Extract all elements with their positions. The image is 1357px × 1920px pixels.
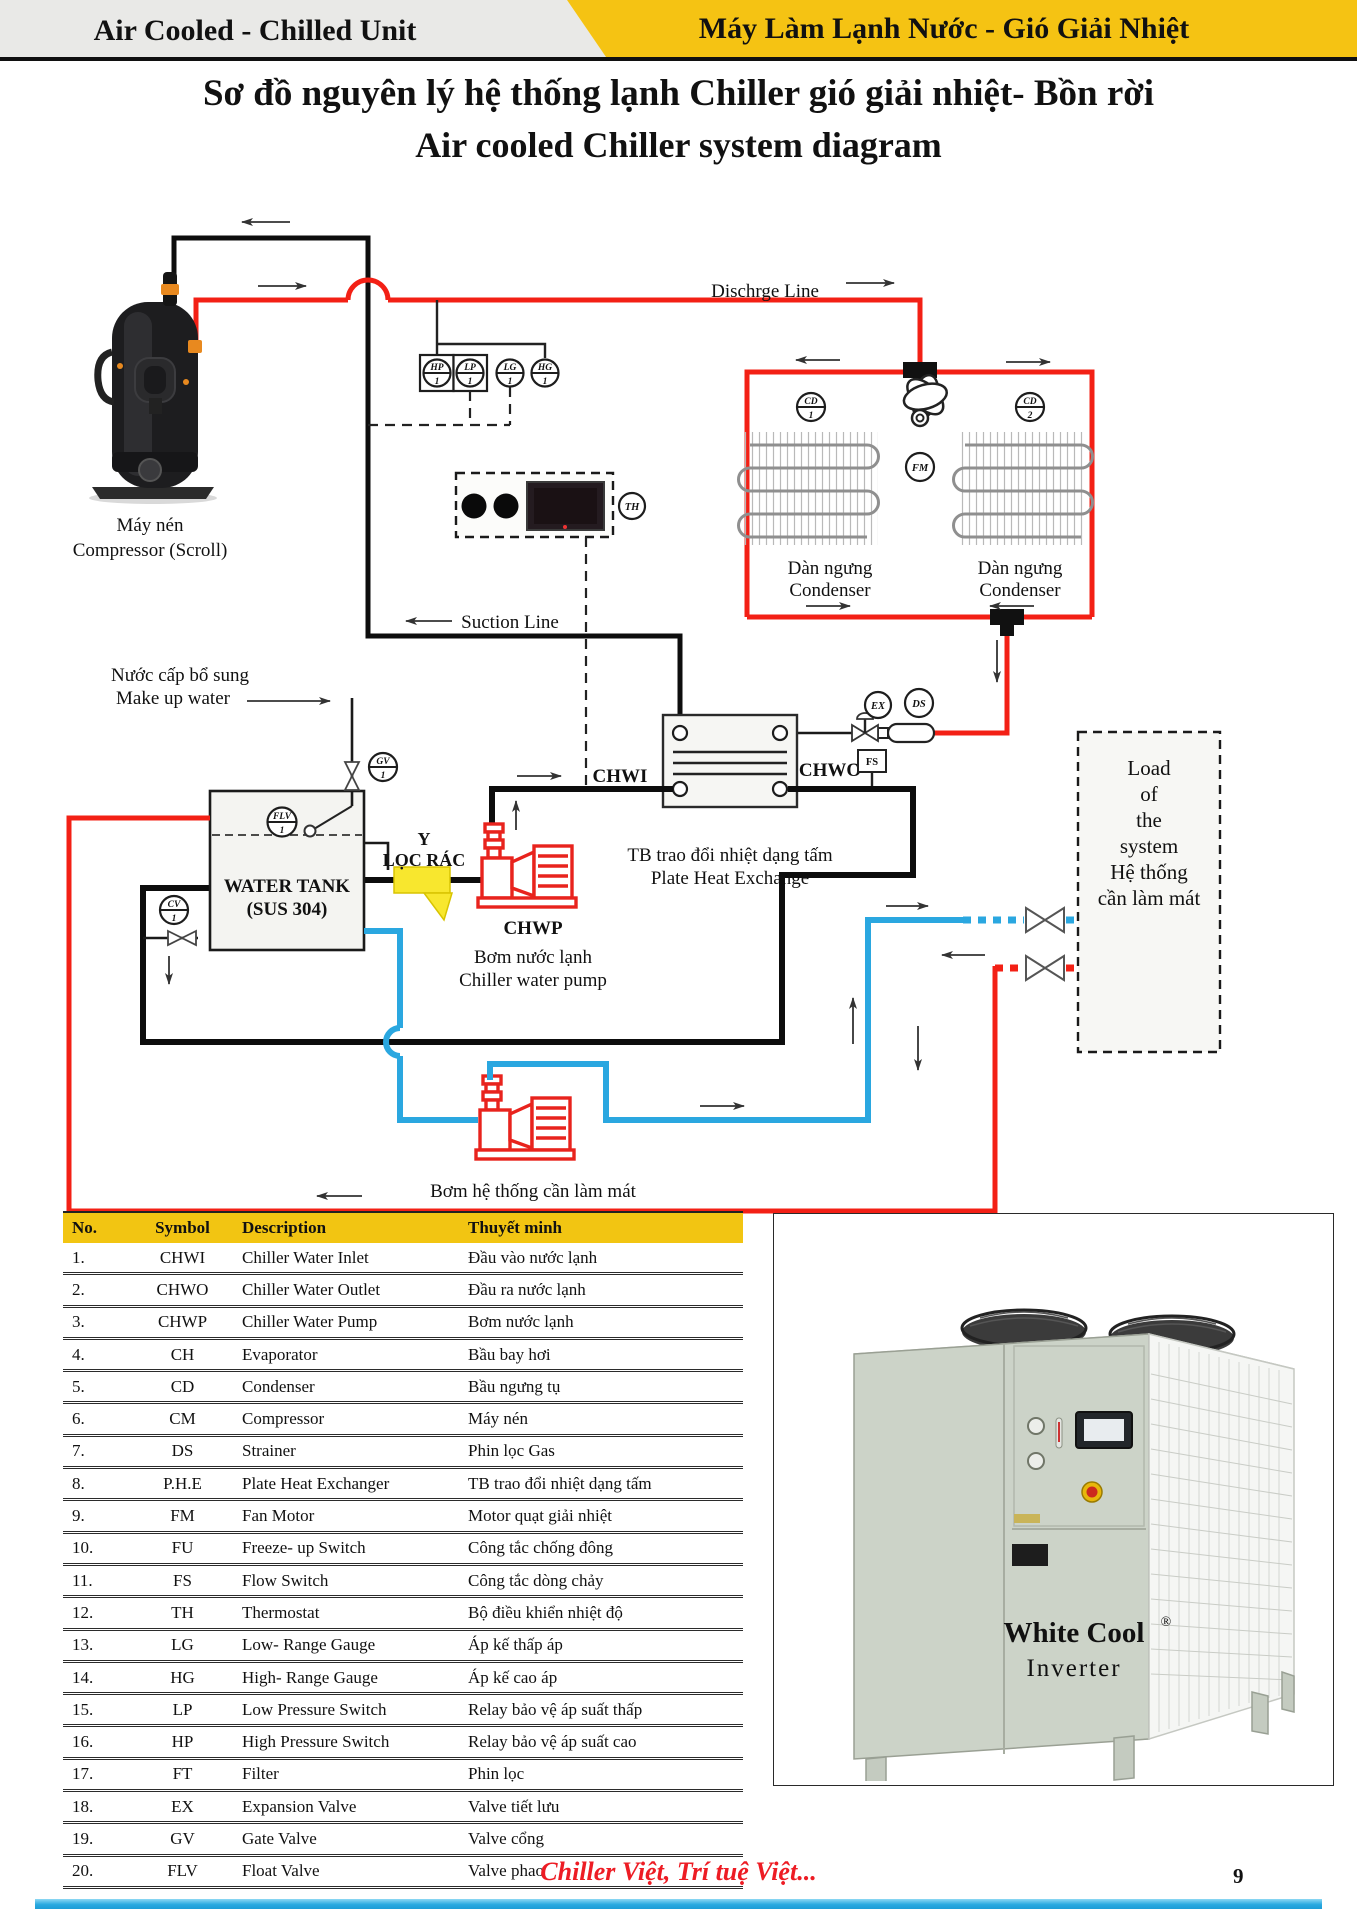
cell-no: 6. <box>63 1409 130 1429</box>
table-row: 19.GVGate ValveValve cổng <box>63 1824 743 1856</box>
cell-desc: Strainer <box>235 1441 460 1461</box>
makeup-valve-symbol <box>345 762 359 790</box>
cell-vn: Bầu ngưng tụ <box>460 1377 743 1397</box>
cell-sym: HP <box>130 1732 235 1752</box>
col-header-vn: Thuyết minh <box>460 1218 743 1238</box>
thermostat-bubble: TH <box>619 493 645 519</box>
cell-vn: Áp kế thấp áp <box>460 1635 743 1655</box>
chwo-label: CHWO <box>799 760 861 781</box>
cell-vn: Bầu bay hơi <box>460 1345 743 1365</box>
col-header-no: No. <box>63 1218 130 1238</box>
cell-no: 7. <box>63 1441 130 1461</box>
table-header-row: No. Symbol Description Thuyết minh <box>63 1213 743 1243</box>
cell-desc: Chiller Water Inlet <box>235 1248 460 1268</box>
page-number: 9 <box>1233 1864 1244 1889</box>
gv-label: GV <box>376 757 390 767</box>
cell-sym: GV <box>130 1829 235 1849</box>
system-pump-label: Bơm hệ thống cần làm mát <box>430 1181 637 1202</box>
cell-no: 14. <box>63 1668 130 1688</box>
cell-desc: Fan Motor <box>235 1506 460 1526</box>
gauge-hg-num: 1 <box>543 377 548 387</box>
cell-desc: Freeze- up Switch <box>235 1538 460 1558</box>
ds-label: DS <box>911 699 926 710</box>
cell-sym: TH <box>130 1603 235 1623</box>
cell-sym: FM <box>130 1506 235 1526</box>
cell-sym: P.H.E <box>130 1474 235 1494</box>
return-shutoff-valve <box>1026 956 1064 980</box>
gauge-lp-label: LP <box>463 363 476 373</box>
gauge-lp-num: 1 <box>468 377 473 387</box>
cv-num: 1 <box>172 914 177 924</box>
symbol-table: No. Symbol Description Thuyết minh 1.CHW… <box>63 1211 743 1889</box>
cell-vn: Motor quạt giải nhiệt <box>460 1506 743 1526</box>
cell-no: 10. <box>63 1538 130 1558</box>
condenser-left-label-vn: Dàn ngưng <box>788 558 873 579</box>
cell-desc: Expansion Valve <box>235 1797 460 1817</box>
table-row: 6.CMCompressorMáy nén <box>63 1404 743 1436</box>
chwp-label: CHWP <box>503 918 563 939</box>
load-line-6: cần làm mát <box>1098 886 1201 910</box>
table-body: 1.CHWIChiller Water InletĐầu vào nước lạ… <box>63 1243 743 1889</box>
flv-num: 1 <box>280 826 285 836</box>
flow-switch: FS <box>858 750 886 789</box>
col-header-symbol: Symbol <box>130 1218 235 1238</box>
cell-vn: Relay bảo vệ áp suất cao <box>460 1732 743 1752</box>
table-row: 11.FSFlow SwitchCông tắc dòng chảy <box>63 1566 743 1598</box>
cell-no: 2. <box>63 1280 130 1300</box>
table-row: 5.CDCondenserBầu ngưng tụ <box>63 1372 743 1404</box>
cell-desc: Thermostat <box>235 1603 460 1623</box>
gauge-lg-label: LG <box>503 363 517 373</box>
cell-desc: Chiller Water Pump <box>235 1312 460 1332</box>
cell-vn: Đầu vào nước lạnh <box>460 1248 743 1268</box>
strainer-symbol <box>888 724 934 742</box>
cell-sym: LG <box>130 1635 235 1655</box>
cell-desc: Plate Heat Exchanger <box>235 1474 460 1494</box>
condenser-right-label-vn: Dàn ngưng <box>978 558 1063 579</box>
cd1-bubble: CD 1 <box>797 393 825 421</box>
fs-label: FS <box>866 757 878 768</box>
table-row: 7.DSStrainerPhin lọc Gas <box>63 1437 743 1469</box>
table-row: 8.P.H.EPlate Heat ExchangerTB trao đổi n… <box>63 1469 743 1501</box>
page: Air Cooled - Chilled Unit Máy Làm Lạnh N… <box>0 0 1357 1920</box>
cell-sym: CHWP <box>130 1312 235 1332</box>
cell-sym: CD <box>130 1377 235 1397</box>
cd2-num: 2 <box>1027 411 1033 421</box>
cell-no: 1. <box>63 1248 130 1268</box>
cell-no: 19. <box>63 1829 130 1849</box>
cd1-label: CD <box>804 397 817 407</box>
condenser-left-label-en: Condenser <box>789 580 871 601</box>
gv-num: 1 <box>381 771 386 781</box>
cell-vn: Áp kế cao áp <box>460 1668 743 1688</box>
cd2-bubble: CD 2 <box>1016 393 1044 421</box>
footer-blue-bar <box>35 1899 1322 1909</box>
table-row: 10.FUFreeze- up SwitchCông tắc chống đôn… <box>63 1534 743 1566</box>
cv-label: CV <box>168 900 181 910</box>
cd2-label: CD <box>1023 397 1036 407</box>
cell-no: 13. <box>63 1635 130 1655</box>
load-line-1: Load <box>1127 756 1171 780</box>
table-row: 9.FMFan MotorMotor quạt giải nhiệt <box>63 1501 743 1533</box>
drain-valve-symbol <box>168 931 196 945</box>
footer-slogan: Chiller Việt, Trí tuệ Việt... <box>0 1857 1357 1887</box>
flv-label: FLV <box>272 812 292 822</box>
cell-sym: EX <box>130 1797 235 1817</box>
makeup-label-en: Make up water <box>116 688 231 709</box>
cell-vn: Đầu ra nước lạnh <box>460 1280 743 1300</box>
cd1-num: 1 <box>809 411 814 421</box>
supply-shutoff-valve <box>1026 908 1064 932</box>
cell-desc: Filter <box>235 1764 460 1784</box>
cell-no: 18. <box>63 1797 130 1817</box>
system-pump-illustration <box>476 1076 574 1159</box>
cell-desc: Evaporator <box>235 1345 460 1365</box>
cell-vn: Bộ điều khiển nhiệt độ <box>460 1603 743 1623</box>
brand-text: White Cool <box>1004 1617 1145 1649</box>
cell-sym: FS <box>130 1571 235 1591</box>
table-row: 13.LGLow- Range GaugeÁp kế thấp áp <box>63 1631 743 1663</box>
gauge-hp-num: 1 <box>435 377 440 387</box>
table-row: 17.FTFilterPhin lọc <box>63 1760 743 1792</box>
cell-desc: Chiller Water Outlet <box>235 1280 460 1300</box>
load-box: Load of the system Hệ thống cần làm mát <box>1078 732 1220 1052</box>
th-label: TH <box>625 502 640 513</box>
fm-label: FM <box>911 463 929 474</box>
cell-sym: CM <box>130 1409 235 1429</box>
water-tank-sus: (SUS 304) <box>247 899 328 920</box>
cell-sym: CHWO <box>130 1280 235 1300</box>
cell-desc: Low- Range Gauge <box>235 1635 460 1655</box>
condenser-fan <box>901 372 950 426</box>
table-row: 2.CHWOChiller Water OutletĐầu ra nước lạ… <box>63 1275 743 1307</box>
gauge-lg-num: 1 <box>508 377 513 387</box>
cell-desc: High Pressure Switch <box>235 1732 460 1752</box>
load-line-4: system <box>1120 834 1178 858</box>
chwp-label-vn: Bơm nước lạnh <box>474 947 592 968</box>
cell-desc: Condenser <box>235 1377 460 1397</box>
cell-no: 12. <box>63 1603 130 1623</box>
load-line-2: of <box>1140 782 1158 806</box>
cell-vn: Valve tiết lưu <box>460 1797 743 1817</box>
brand-reg: ® <box>1161 1615 1172 1630</box>
cell-no: 17. <box>63 1764 130 1784</box>
cell-sym: CH <box>130 1345 235 1365</box>
cabinet-body <box>854 1334 1294 1759</box>
compressor-label-en: Compressor (Scroll) <box>73 540 228 561</box>
float-ball <box>305 826 316 837</box>
chiller-product-illustration: White Cool ® Inverter <box>774 1214 1329 1781</box>
makeup-label-vn: Nước cấp bổ sung <box>111 665 250 686</box>
condenser-right-label-en: Condenser <box>979 580 1061 601</box>
table-row: 16.HPHigh Pressure SwitchRelay bảo vệ áp… <box>63 1727 743 1759</box>
water-tank-label: WATER TANK <box>224 876 350 897</box>
load-line-5: Hệ thống <box>1110 860 1188 884</box>
cell-no: 9. <box>63 1506 130 1526</box>
table-row: 15.LPLow Pressure SwitchRelay bảo vệ áp … <box>63 1695 743 1727</box>
table-row: 14.HGHigh- Range GaugeÁp kế cao áp <box>63 1663 743 1695</box>
cell-no: 15. <box>63 1700 130 1720</box>
table-row: 4.CHEvaporatorBầu bay hơi <box>63 1340 743 1372</box>
gauge-cluster: HP 1 LP 1 LG 1 HG 1 <box>368 300 559 425</box>
discharge-line-label: Dischrge Line <box>711 281 819 302</box>
cell-desc: Low Pressure Switch <box>235 1700 460 1720</box>
cell-vn: Công tắc chống đông <box>460 1538 743 1558</box>
condenser-coil-left <box>739 432 879 545</box>
table-row: 18.EXExpansion ValveValve tiết lưu <box>63 1792 743 1824</box>
cell-vn: Valve cổng <box>460 1829 743 1849</box>
y-strainer <box>394 867 452 920</box>
cell-vn: TB trao đổi nhiệt dạng tấm <box>460 1474 743 1494</box>
liquid-line-components: EX DS <box>787 689 934 742</box>
cell-no: 3. <box>63 1312 130 1332</box>
chwp-pump-illustration <box>478 824 576 907</box>
cell-sym: LP <box>130 1700 235 1720</box>
table-row: 12.THThermostatBộ điều khiển nhiệt độ <box>63 1598 743 1630</box>
condenser-coil-right <box>954 432 1093 545</box>
table-row: 1.CHWIChiller Water InletĐầu vào nước lạ… <box>63 1243 743 1275</box>
cell-desc: High- Range Gauge <box>235 1668 460 1688</box>
cell-vn: Máy nén <box>460 1409 743 1429</box>
product-image-frame: White Cool ® Inverter <box>773 1213 1334 1786</box>
cell-no: 5. <box>63 1377 130 1397</box>
col-header-description: Description <box>235 1218 460 1238</box>
cell-sym: FT <box>130 1764 235 1784</box>
cell-vn: Công tắc dòng chảy <box>460 1571 743 1591</box>
gv-bubble: GV 1 <box>369 753 397 781</box>
load-line-3: the <box>1136 808 1162 832</box>
cell-desc: Gate Valve <box>235 1829 460 1849</box>
phe-label-en: Plate Heat Exchange <box>651 868 809 889</box>
compressor-label-vn: Máy nén <box>116 515 184 536</box>
cv-bubble: CV 1 <box>160 896 188 924</box>
suction-line-label: Suction Line <box>461 612 559 633</box>
phe-label-vn: TB trao đổi nhiệt dạng tấm <box>627 845 832 866</box>
cell-desc: Flow Switch <box>235 1571 460 1591</box>
ex-label: EX <box>870 701 886 712</box>
tee-fitting-bottom <box>990 609 1024 636</box>
gauge-hg-label: HG <box>537 363 552 373</box>
cell-sym: DS <box>130 1441 235 1461</box>
plate-heat-exchanger <box>663 715 797 807</box>
y-strainer-label-2: LỌC RÁC <box>383 849 466 870</box>
chwp-label-en: Chiller water pump <box>459 970 607 991</box>
cell-no: 8. <box>63 1474 130 1494</box>
cell-vn: Phin lọc <box>460 1764 743 1784</box>
gauge-hp-label: HP <box>429 363 443 373</box>
cell-sym: HG <box>130 1668 235 1688</box>
cell-vn: Bơm nước lạnh <box>460 1312 743 1332</box>
flv-bubble: FLV 1 <box>268 808 297 837</box>
model-text: Inverter <box>1026 1655 1121 1682</box>
cell-no: 16. <box>63 1732 130 1752</box>
table-row: 3.CHWPChiller Water PumpBơm nước lạnh <box>63 1308 743 1340</box>
cell-sym: CHWI <box>130 1248 235 1268</box>
cell-vn: Phin lọc Gas <box>460 1441 743 1461</box>
fm-bubble: FM <box>906 453 934 481</box>
cell-no: 11. <box>63 1571 130 1591</box>
cell-sym: FU <box>130 1538 235 1558</box>
chwi-label: CHWI <box>593 766 648 787</box>
cell-desc: Compressor <box>235 1409 460 1429</box>
y-strainer-label-1: Y <box>418 829 431 849</box>
cell-vn: Relay bảo vệ áp suất thấp <box>460 1700 743 1720</box>
chiller-system-diagram: Máy nén Compressor (Scroll) HP 1 LP 1 LG… <box>0 0 1357 1225</box>
cell-no: 4. <box>63 1345 130 1365</box>
